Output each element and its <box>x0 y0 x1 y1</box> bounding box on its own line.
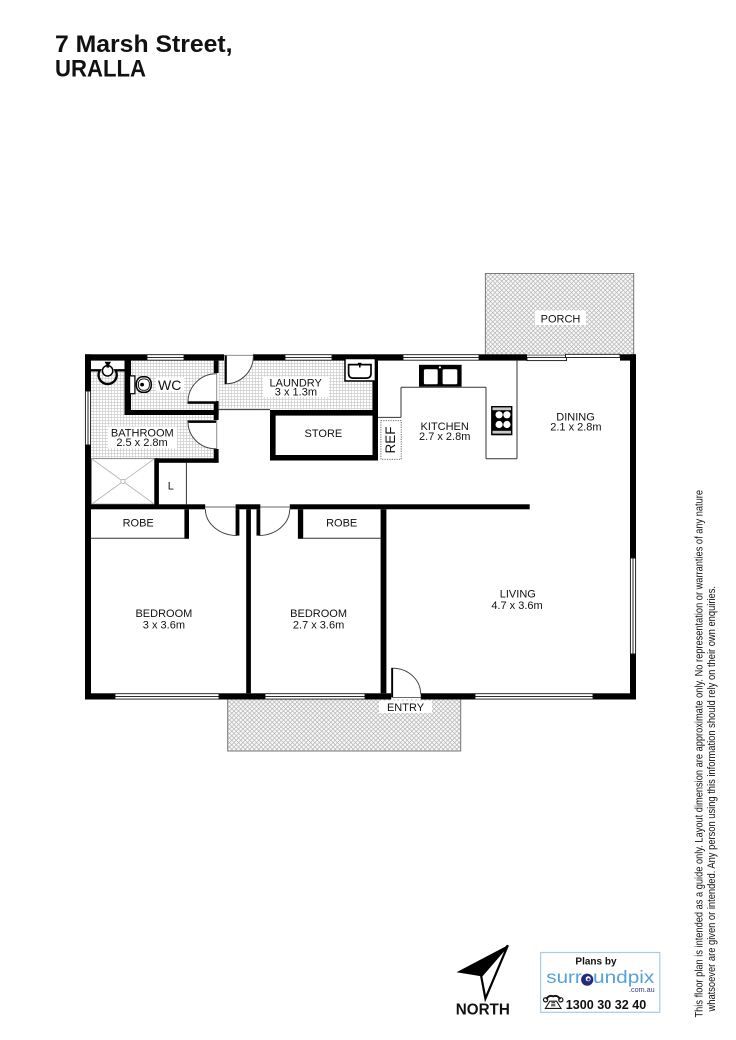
svg-text:L: L <box>168 480 174 492</box>
svg-text:.com.au: .com.au <box>629 985 655 994</box>
svg-text:REF: REF <box>383 427 398 454</box>
svg-text:ROBE: ROBE <box>326 518 357 530</box>
svg-text:2.1 x 2.8m: 2.1 x 2.8m <box>550 422 601 434</box>
svg-text:LIVING: LIVING <box>500 589 536 601</box>
svg-text:3 x 1.3m: 3 x 1.3m <box>275 386 317 398</box>
svg-text:URALLA: URALLA <box>55 55 146 82</box>
svg-text:This floor plan is intended as: This floor plan is intended as a guide o… <box>694 490 706 1018</box>
svg-text:ENTRY: ENTRY <box>387 702 425 714</box>
svg-text:BEDROOM: BEDROOM <box>135 608 192 620</box>
svg-text:7 Marsh Street,: 7 Marsh Street, <box>55 31 233 58</box>
svg-text:2.7 x 2.8m: 2.7 x 2.8m <box>419 431 470 443</box>
svg-text:1300 30 32 40: 1300 30 32 40 <box>566 997 646 1012</box>
svg-text:WC: WC <box>158 377 181 393</box>
svg-text:Plans by: Plans by <box>575 956 617 967</box>
svg-text:4.7 x 3.6m: 4.7 x 3.6m <box>491 600 542 612</box>
svg-text:2.7 x 3.6m: 2.7 x 3.6m <box>293 619 344 631</box>
svg-text:STORE: STORE <box>305 428 343 440</box>
svg-text:3 x 3.6m: 3 x 3.6m <box>143 619 185 631</box>
svg-text:PORCH: PORCH <box>541 313 581 325</box>
svg-text:whatsoever are given or intend: whatsoever are given or intended. Any pe… <box>706 586 718 1012</box>
svg-text:BEDROOM: BEDROOM <box>290 608 347 620</box>
svg-text:ROBE: ROBE <box>123 518 154 530</box>
svg-text:surr: surr <box>546 967 582 987</box>
svg-text:2.5 x 2.8m: 2.5 x 2.8m <box>116 437 167 449</box>
svg-text:NORTH: NORTH <box>456 1002 510 1019</box>
